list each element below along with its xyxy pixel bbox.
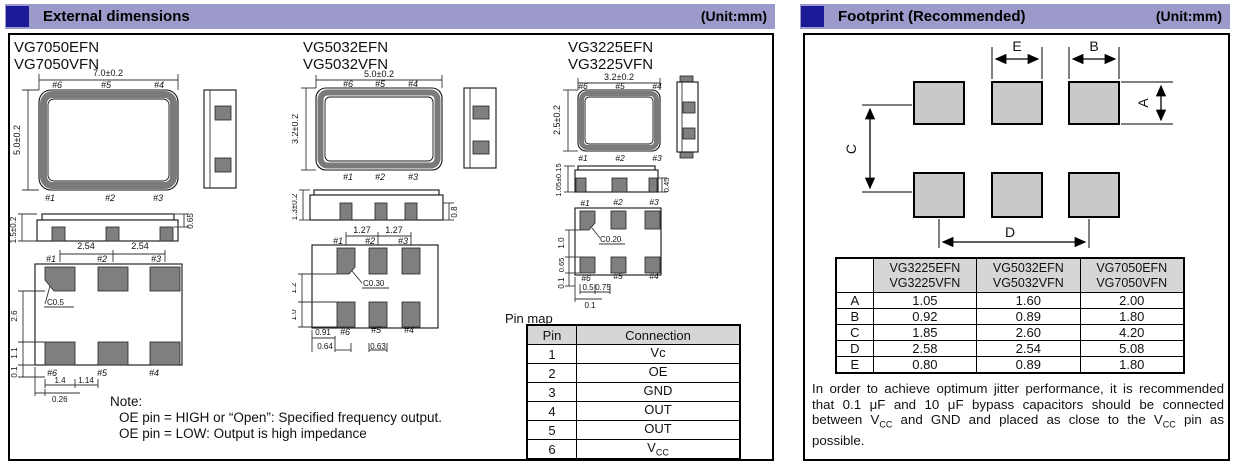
pin-number: 3	[527, 383, 577, 402]
pin-map-table: Pin Connection 1 Vc 2 OE 3 GND 4 OUT 5 O…	[526, 324, 741, 460]
package-name: VG7050EFN	[14, 39, 99, 56]
top-view	[316, 88, 442, 170]
drawing-vg5032: VG5032EFN VG5032VFN 5.0±0.2 #6 #5 #4 #1 …	[292, 38, 507, 363]
dim-pitch-label: 1.27	[385, 225, 403, 235]
pin-map-row: 3 GND	[527, 383, 740, 402]
footprint-pad	[914, 82, 964, 124]
profile-view: 1.3±0.2 0.8	[292, 190, 459, 220]
value-cell: 1.80	[1080, 357, 1184, 374]
column-header: VG7050EFNVG7050VFN	[1080, 258, 1184, 293]
value-cell: 1.60	[977, 293, 1080, 309]
pin-label: #2	[613, 197, 623, 207]
dim-width-label: 7.0±0.2	[93, 68, 123, 78]
profile-view: 1.05±0.15 0.45	[554, 163, 671, 196]
pin-map-row: 5 OUT	[527, 421, 740, 440]
side-view	[464, 88, 496, 168]
side-view	[204, 90, 236, 188]
row-label: B	[836, 309, 873, 325]
profile-view: 1.5±0.2 0.65	[10, 213, 195, 244]
footprint-pad	[1069, 82, 1119, 124]
value-cell: 2.60	[977, 325, 1080, 341]
dim-height-label: 5.0±0.2	[12, 125, 22, 155]
dim-pitch-label: 1.27	[353, 225, 371, 235]
pin-map-row: 1 Vc	[527, 345, 740, 364]
chamfer-label: C0.20	[600, 235, 622, 244]
bottom-view: 2.54 2.54 #1 #2 #3 C0.5	[10, 241, 182, 404]
header-accent-square	[801, 6, 824, 27]
external-dimensions-panel: VG7050EFN VG7050VFN 7.0±0.2 #6 #5 #4 #1 …	[8, 33, 774, 461]
dim-label: 0.1	[557, 277, 566, 289]
header-accent-square	[6, 6, 29, 27]
value-cell: 0.89	[977, 357, 1080, 374]
column-header: VG3225EFNVG3225VFN	[873, 258, 976, 293]
value-cell: 0.92	[873, 309, 976, 325]
pin-col-header: Pin	[527, 325, 577, 345]
footprint-header-row: VG3225EFNVG3225VFN VG5032EFNVG5032VFN VG…	[836, 258, 1184, 293]
note-line: OE pin = LOW: Output is high impedance	[110, 426, 442, 442]
footprint-panel: E B A C D VG3225EFNVG322	[803, 33, 1230, 461]
footprint-row: B 0.92 0.89 1.80	[836, 309, 1184, 325]
pin-label: #4	[652, 81, 662, 91]
dim-height-label: 2.5±0.2	[552, 105, 562, 135]
dim-profile-label: 1.3±0.2	[292, 193, 299, 220]
dim-label: 0.63	[370, 342, 386, 351]
dim-label: 0.91	[315, 328, 331, 337]
dim-label: 1.0	[292, 309, 298, 321]
pin-label: #5	[613, 271, 623, 281]
chamfer-label: C0.5	[47, 298, 64, 307]
row-label: A	[836, 293, 873, 309]
datasheet-page: External dimensions (Unit:mm) VG7050EFN …	[0, 0, 1233, 467]
dim-label: 0.26	[52, 395, 68, 404]
pin-label: #4	[154, 80, 164, 90]
footprint-pad	[914, 173, 964, 217]
row-label: C	[836, 325, 873, 341]
pin-label: #4	[149, 368, 159, 378]
pin-label: #4	[649, 271, 659, 281]
dim-profile-label: 1.05±0.15	[554, 163, 563, 196]
top-view	[39, 90, 178, 190]
right-section-title: Footprint (Recommended)	[838, 4, 1026, 29]
footprint-diagram: E B A C D	[805, 35, 1228, 256]
pin-map-row: 2 OE	[527, 364, 740, 383]
value-cell: 1.80	[1080, 309, 1184, 325]
pin-label: #4	[404, 325, 414, 335]
dim-label: 0.5	[582, 283, 594, 292]
pin-label: #3	[649, 197, 659, 207]
dim-label: 1.1	[10, 347, 19, 359]
row-label: E	[836, 357, 873, 374]
footprint-row: A 1.05 1.60 2.00	[836, 293, 1184, 309]
drawing-vg7050: VG7050EFN VG7050VFN 7.0±0.2 #6 #5 #4 #1 …	[10, 38, 295, 406]
dim-label: 0.1	[10, 366, 19, 378]
dim-b-label: B	[1089, 38, 1098, 54]
pin-connection: OE	[577, 364, 741, 383]
pin-number: 2	[527, 364, 577, 383]
pin-label: #1	[46, 254, 56, 264]
pin-connection: Vc	[577, 345, 741, 364]
bypass-capacitor-note: In order to achieve optimum jitter perfo…	[812, 381, 1224, 449]
pin-label: #6	[52, 80, 62, 90]
dim-lid-label: 0.65	[186, 213, 195, 229]
value-cell: 1.85	[873, 325, 976, 341]
pin-label: #3	[151, 254, 161, 264]
dim-label: 0.64	[317, 342, 333, 351]
dim-profile-label: 1.5±0.2	[10, 216, 18, 243]
dim-label: 0.75	[595, 283, 611, 292]
bottom-view: #1 #2 #3 C0.20 1.0 0.65 0.	[557, 197, 661, 310]
dim-a-label: A	[1135, 98, 1151, 108]
pin-connection: OUT	[577, 402, 741, 421]
footprint-table: VG3225EFNVG3225VFN VG5032EFNVG5032VFN VG…	[835, 257, 1185, 374]
right-section-header: Footprint (Recommended) (Unit:mm)	[800, 4, 1230, 29]
side-view	[677, 76, 698, 158]
drawing-vg3225: VG3225EFN VG3225VFN 3.2±0.2 #6 #5 #4 #1 …	[552, 38, 780, 310]
pin-label: #1	[580, 198, 590, 208]
pin-label: #6	[581, 273, 591, 283]
dim-height-label: 3.2±0.2	[292, 114, 300, 144]
pin-label: #1	[578, 153, 588, 163]
top-view	[578, 90, 660, 151]
package-name: VG5032EFN	[303, 39, 388, 56]
dim-label: 0.1	[584, 301, 596, 310]
pin-label: #2	[615, 153, 625, 163]
dim-label: 1.14	[78, 376, 94, 385]
value-cell: 0.89	[977, 309, 1080, 325]
footprint-row: D 2.58 2.54 5.08	[836, 341, 1184, 357]
dim-label: 0.65	[557, 258, 566, 273]
pin-number: 6	[527, 440, 577, 460]
pin-map-row: 4 OUT	[527, 402, 740, 421]
dim-label: 1.0	[557, 237, 566, 249]
value-cell: 0.80	[873, 357, 976, 374]
pin-label: #3	[652, 153, 662, 163]
dim-label: 1.2	[292, 282, 298, 294]
bottom-view: 1.27 1.27 #1 #2 #3 C0.30 1.2	[292, 225, 438, 352]
value-cell: 5.08	[1080, 341, 1184, 357]
dim-label: 1.4	[54, 376, 66, 385]
oe-note: Note: OE pin = HIGH or “Open”: Specified…	[110, 394, 442, 442]
pin-label: #1	[45, 193, 55, 203]
column-header: VG5032EFNVG5032VFN	[977, 258, 1080, 293]
value-cell: 2.00	[1080, 293, 1184, 309]
dim-lid-label: 0.8	[450, 206, 459, 218]
corner-cell	[836, 258, 873, 293]
dim-pitch-label: 2.54	[77, 241, 95, 251]
left-section-header: External dimensions (Unit:mm)	[5, 4, 775, 29]
footprint-row: E 0.80 0.89 1.80	[836, 357, 1184, 374]
row-label: D	[836, 341, 873, 357]
pin-label: #5	[97, 368, 108, 378]
pin-label: #2	[375, 172, 385, 182]
pin-label: #3	[153, 193, 163, 203]
value-cell: 1.05	[873, 293, 976, 309]
connection-col-header: Connection	[577, 325, 741, 345]
pin-label: #3	[408, 172, 418, 182]
note-label: Note:	[110, 394, 442, 410]
pin-number: 4	[527, 402, 577, 421]
pin-connection: VCC	[577, 440, 741, 460]
pin-label: #5	[101, 80, 112, 90]
package-name: VG3225EFN	[568, 39, 653, 56]
value-cell: 4.20	[1080, 325, 1184, 341]
dim-pitch-label: 2.54	[131, 241, 149, 251]
right-section-unit: (Unit:mm)	[1156, 4, 1222, 29]
pin-label: #2	[105, 193, 115, 203]
pin-connection: OUT	[577, 421, 741, 440]
pin-map-header-row: Pin Connection	[527, 325, 740, 345]
dim-c-label: C	[843, 144, 859, 154]
chamfer-label: C0.30	[363, 279, 385, 288]
pin-connection: GND	[577, 383, 741, 402]
footprint-row: C 1.85 2.60 4.20	[836, 325, 1184, 341]
pin-number: 5	[527, 421, 577, 440]
note-line: OE pin = HIGH or “Open”: Specified frequ…	[110, 410, 442, 426]
left-section-title: External dimensions	[43, 4, 190, 29]
package-name: VG3225VFN	[568, 56, 653, 73]
footprint-pad	[992, 173, 1042, 217]
footprint-pad	[992, 82, 1042, 124]
dim-e-label: E	[1012, 38, 1021, 54]
dim-label: 2.6	[10, 310, 19, 322]
pin-label: #1	[343, 172, 353, 182]
left-section-unit: (Unit:mm)	[701, 4, 767, 29]
pin-number: 1	[527, 345, 577, 364]
pin-label: #6	[340, 327, 350, 337]
footprint-pad	[1069, 173, 1119, 217]
dim-lid-label: 0.45	[662, 178, 671, 193]
pin-map-row: 6 VCC	[527, 440, 740, 460]
dim-width-label: 5.0±0.2	[364, 69, 394, 79]
package-name: VG7050VFN	[14, 56, 99, 73]
pin-label: #2	[97, 254, 107, 264]
value-cell: 2.58	[873, 341, 976, 357]
value-cell: 2.54	[977, 341, 1080, 357]
pin-label: #5	[371, 325, 382, 335]
dim-d-label: D	[1005, 224, 1015, 240]
